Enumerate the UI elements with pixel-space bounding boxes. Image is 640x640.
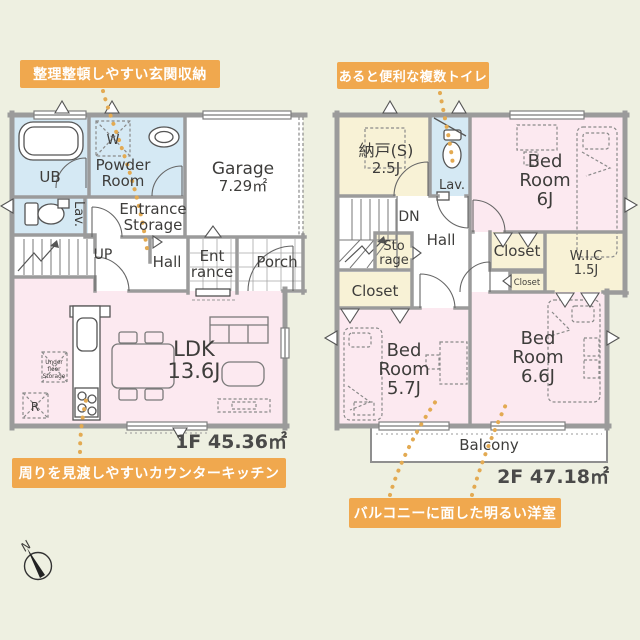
label-storage2f-2: rage <box>379 253 409 268</box>
label-ldk: LDK <box>173 337 216 361</box>
label-closet-left: Closet <box>352 282 399 300</box>
front-door <box>196 289 230 296</box>
label-ldk-size: 13.6J <box>168 359 221 383</box>
label-closet-small: Closet <box>514 278 541 288</box>
label-bed66-1: Bed <box>521 328 556 349</box>
label-hall-2f: Hall <box>427 231 456 249</box>
label-bed6-3: 6J <box>537 189 554 210</box>
label-bed6-2: Room <box>519 170 570 191</box>
label-bed66-2: Room <box>512 347 563 368</box>
label-1f-area: 1F 45.36㎡ <box>175 430 287 453</box>
label-powder-2: Room <box>102 172 145 190</box>
callout-entrance-storage: 整理整頓しやすい玄関収納 <box>20 60 220 88</box>
compass: N <box>18 538 51 580</box>
compass-north-label: N <box>18 538 34 555</box>
label-lav-2f: Lav. <box>439 178 465 193</box>
label-wic-2: 1.5J <box>574 263 599 278</box>
label-bed57-2: Room <box>378 359 429 380</box>
label-garage-area: 7.29㎡ <box>219 177 267 195</box>
label-underfloor-3: Storage <box>43 374 66 380</box>
label-storage2f-1: Sto <box>383 239 404 254</box>
callout-multiple-toilets: あると便利な複数トイレ <box>337 62 489 89</box>
label-lav-1f: Lav. <box>71 201 86 227</box>
label-entrance-storage-2: Storage <box>124 216 183 234</box>
label-hall-1f: Hall <box>153 253 182 271</box>
label-balcony: Balcony <box>459 436 519 454</box>
label-ub: UB <box>39 168 60 186</box>
label-storeroom-2: 2.5J <box>372 159 400 177</box>
label-underfloor-1: Under <box>45 360 63 366</box>
label-dn: DN <box>398 209 419 225</box>
callout-counter-kitchen: 周りを見渡しやすいカウンターキッチン <box>12 458 286 488</box>
label-entrance-2: rance <box>191 263 233 281</box>
powder-sink-icon <box>149 127 179 147</box>
label-bed57-3: 5.7J <box>387 378 421 399</box>
floor-plan-canvas: N UB W Powder Room Lav. Entrance Storage… <box>0 0 640 640</box>
label-wic-1: W.I.C <box>570 249 603 264</box>
label-washer: W <box>107 133 120 148</box>
label-garage: Garage <box>212 159 274 179</box>
label-porch: Porch <box>256 253 297 271</box>
label-storeroom-1: 納戸(S) <box>359 141 414 160</box>
floor-plan-svg: N UB W Powder Room Lav. Entrance Storage… <box>0 0 640 640</box>
label-bed66-3: 6.6J <box>521 366 555 387</box>
label-closet-mid: Closet <box>494 242 541 260</box>
label-underfloor-2: floor <box>47 367 61 373</box>
label-2f-area: 2F 47.18㎡ <box>497 465 609 488</box>
label-bed6-1: Bed <box>528 151 563 172</box>
callout-bright-rooms: バルコニーに面した明るい洋室 <box>349 498 561 528</box>
bathtub-icon <box>19 122 83 160</box>
label-up: UP <box>94 247 113 263</box>
label-bed57-1: Bed <box>387 340 422 361</box>
label-fridge: R <box>31 400 39 414</box>
